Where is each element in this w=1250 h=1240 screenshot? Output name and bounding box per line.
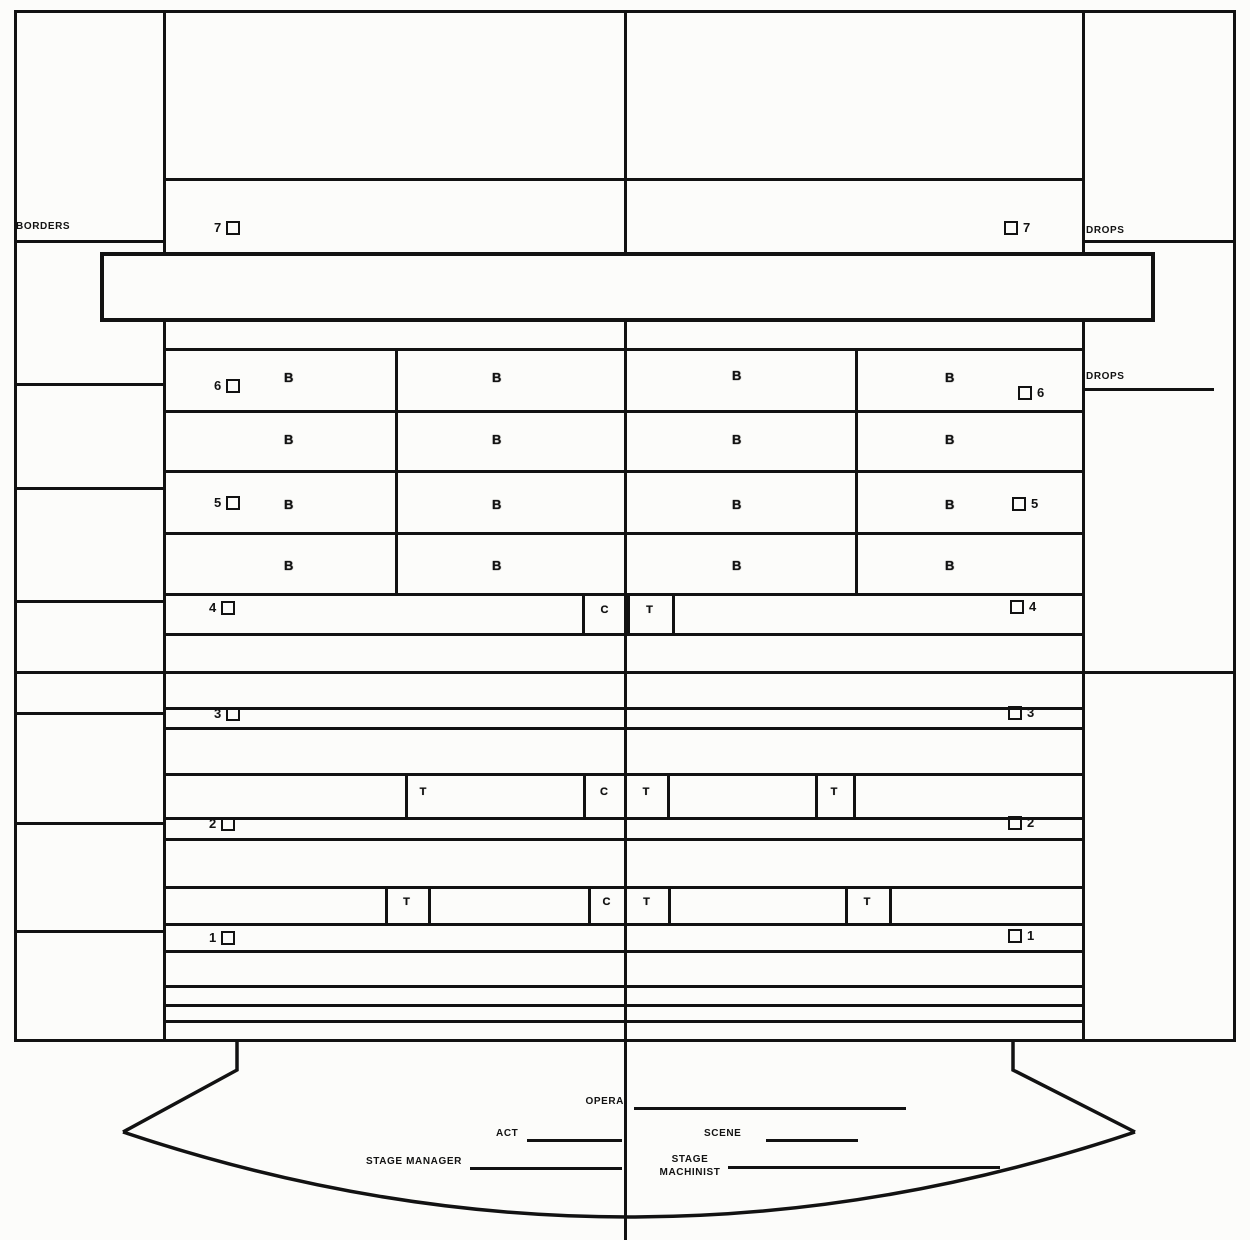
scene-field-line [766, 1139, 858, 1142]
batten-number: 7 [1023, 220, 1030, 235]
stage-manager-field-label: STAGE MANAGER [366, 1156, 462, 1167]
batten-number: 1 [1027, 928, 1034, 943]
batten-3-label-right: 3 [1008, 705, 1034, 720]
batten-2-label-right: 2 [1008, 815, 1034, 830]
square-marker [1004, 221, 1018, 235]
border-light-marker: B [492, 370, 501, 385]
opera-field-line [634, 1107, 906, 1110]
square-marker [1010, 600, 1024, 614]
act-curtain-bar [100, 252, 1155, 322]
border-light-marker: B [492, 432, 501, 447]
border-light-marker: B [732, 558, 741, 573]
border-light-marker: B [732, 368, 741, 383]
tormentor-marker: T [405, 786, 441, 798]
opera-field-label: OPERA [540, 1096, 624, 1107]
act-field-label: ACT [496, 1128, 518, 1139]
batten-number: 3 [1027, 705, 1034, 720]
border-light-marker: B [732, 497, 741, 512]
batten-number: 2 [209, 816, 216, 831]
apron-curve [0, 0, 1250, 1240]
tormentor-marker: T [625, 786, 667, 798]
batten-number: 2 [1027, 815, 1034, 830]
batten-number: 1 [209, 930, 216, 945]
square-marker [1008, 706, 1022, 720]
batten-4-label-left: 4 [209, 600, 235, 615]
batten-number: 4 [209, 600, 216, 615]
square-marker [1012, 497, 1026, 511]
border-light-marker: B [284, 558, 293, 573]
center-marker: C [582, 604, 627, 616]
square-marker [1008, 929, 1022, 943]
batten-number: 7 [214, 220, 221, 235]
batten-7-label-right: 7 [1004, 220, 1030, 235]
border-light-marker: B [945, 432, 954, 447]
batten-number: 5 [214, 495, 221, 510]
batten-number: 4 [1029, 599, 1036, 614]
scene-field-label: SCENE [704, 1128, 741, 1139]
border-light-marker: B [284, 432, 293, 447]
border-light-marker: B [945, 558, 954, 573]
batten-4-label-right: 4 [1010, 599, 1036, 614]
stage-machinist-label-line1: STAGE [655, 1153, 725, 1166]
border-light-marker: B [945, 370, 954, 385]
batten-number: 3 [214, 706, 221, 721]
batten-1-label-left: 1 [209, 930, 235, 945]
batten-number: 6 [214, 378, 221, 393]
square-marker [226, 221, 240, 235]
stage-machinist-label-line2: MACHINIST [655, 1166, 725, 1179]
border-light-marker: B [284, 370, 293, 385]
square-marker [226, 707, 240, 721]
batten-2-label-left: 2 [209, 816, 235, 831]
batten-6-label-left: 6 [214, 378, 240, 393]
act-field-line [527, 1139, 622, 1142]
border-light-marker: B [732, 432, 741, 447]
drops-column-label: DROPS [1086, 371, 1125, 382]
square-marker [1008, 816, 1022, 830]
batten-3-label-left: 3 [214, 706, 240, 721]
stage-machinist-field-line [728, 1166, 1000, 1169]
square-marker [221, 931, 235, 945]
border-light-marker: B [945, 497, 954, 512]
tormentor-marker: T [627, 604, 672, 616]
tormentor-marker: T [385, 896, 428, 908]
stage-machinist-field-label: STAGE MACHINIST [655, 1153, 725, 1179]
tormentor-marker: T [845, 896, 889, 908]
center-marker: C [588, 896, 625, 908]
tormentor-marker: T [625, 896, 668, 908]
batten-6-label-right: 6 [1018, 385, 1044, 400]
batten-number: 6 [1037, 385, 1044, 400]
tormentor-marker: T [815, 786, 853, 798]
batten-5-label-left: 5 [214, 495, 240, 510]
square-marker [226, 496, 240, 510]
stage-manager-field-line [470, 1167, 622, 1170]
square-marker [221, 601, 235, 615]
square-marker [221, 817, 235, 831]
batten-1-label-right: 1 [1008, 928, 1034, 943]
center-marker: C [583, 786, 625, 798]
border-light-marker: B [492, 497, 501, 512]
border-light-marker: B [492, 558, 501, 573]
borders-column-label: BORDERS [16, 221, 70, 232]
batten-number: 5 [1031, 496, 1038, 511]
border-light-marker: B [284, 497, 293, 512]
square-marker [226, 379, 240, 393]
stage-plan-diagram: BORDERS DROPS DROPS 7 6 5 4 3 2 1 7 6 5 … [0, 0, 1250, 1240]
batten-7-label-left: 7 [214, 220, 240, 235]
batten-5-label-right: 5 [1012, 496, 1038, 511]
drops-column-label: DROPS [1086, 225, 1125, 236]
square-marker [1018, 386, 1032, 400]
